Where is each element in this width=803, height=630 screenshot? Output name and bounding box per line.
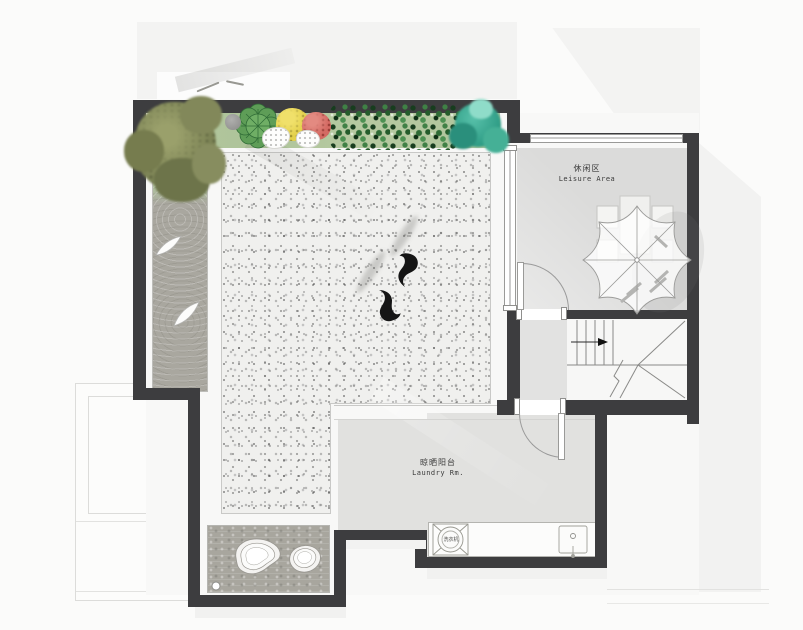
- gravel-stone-2: [170, 300, 203, 327]
- parasol-icon: [583, 206, 691, 314]
- leisure-area-label-en: Leisure Area: [537, 175, 637, 184]
- teal-tree: [449, 99, 511, 157]
- hedge-planting: [330, 104, 462, 150]
- laundry-room-label-zh: 晾晒阳台: [388, 458, 488, 469]
- koi-fish-1: [391, 251, 420, 289]
- washer-label: 洗衣机: [436, 536, 466, 543]
- leisure-area-label: 休闲区 Leisure Area: [537, 164, 637, 184]
- plan-symbol-overlay: [0, 0, 803, 630]
- floor-plan-canvas: 休闲区 Leisure Area 晾晒阳台 Laundry Rm. 洗衣机: [0, 0, 803, 630]
- gravel-stone-1: [153, 235, 184, 257]
- floor-drain: [212, 582, 220, 590]
- sink-icon: [559, 526, 587, 558]
- laundry-room-label: 晾晒阳台 Laundry Rm.: [388, 458, 488, 478]
- koi-fish-2: [374, 286, 402, 323]
- olive-tree: [124, 96, 228, 206]
- laundry-room-label-en: Laundry Rm.: [388, 469, 488, 478]
- landscape-stones: [236, 539, 321, 574]
- shrub-white-flowers-2: [296, 130, 320, 148]
- leisure-area-label-zh: 休闲区: [537, 164, 637, 175]
- staircase: [567, 320, 687, 398]
